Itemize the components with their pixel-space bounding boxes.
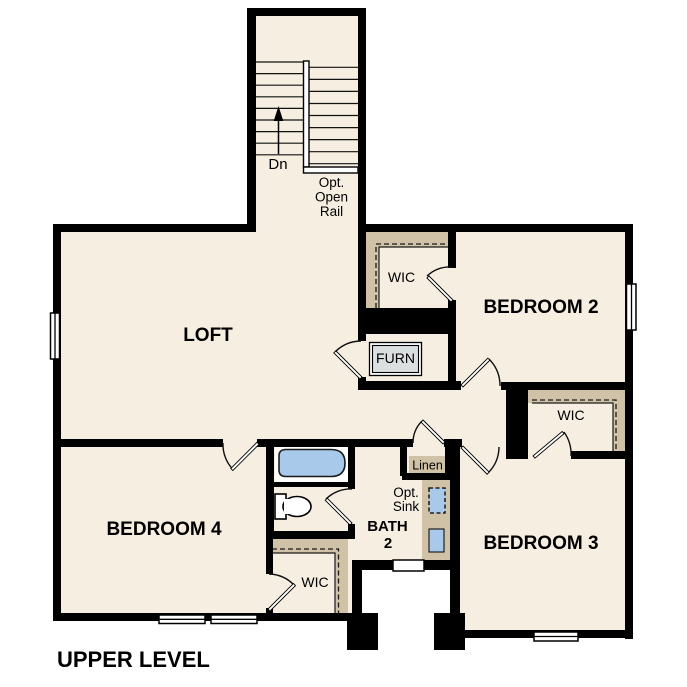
svg-text:Opt.: Opt.	[393, 485, 419, 500]
svg-text:BEDROOM 4: BEDROOM 4	[106, 519, 222, 540]
svg-text:Open: Open	[315, 190, 348, 205]
svg-text:UPPER LEVEL: UPPER LEVEL	[57, 647, 210, 672]
svg-text:Opt.: Opt.	[319, 175, 345, 190]
svg-text:WIC: WIC	[557, 407, 584, 423]
svg-text:Sink: Sink	[393, 499, 420, 514]
svg-text:BATH: BATH	[367, 518, 408, 535]
svg-text:BEDROOM 2: BEDROOM 2	[483, 297, 598, 318]
svg-text:FURN: FURN	[376, 350, 415, 366]
svg-text:LOFT: LOFT	[183, 325, 233, 346]
svg-text:2: 2	[384, 535, 392, 552]
svg-text:WIC: WIC	[301, 574, 328, 590]
svg-text:Dn: Dn	[268, 156, 287, 173]
svg-text:WIC: WIC	[388, 269, 415, 285]
svg-text:BEDROOM 3: BEDROOM 3	[483, 533, 598, 554]
svg-text:Linen: Linen	[412, 459, 443, 473]
svg-text:Rail: Rail	[320, 204, 343, 219]
